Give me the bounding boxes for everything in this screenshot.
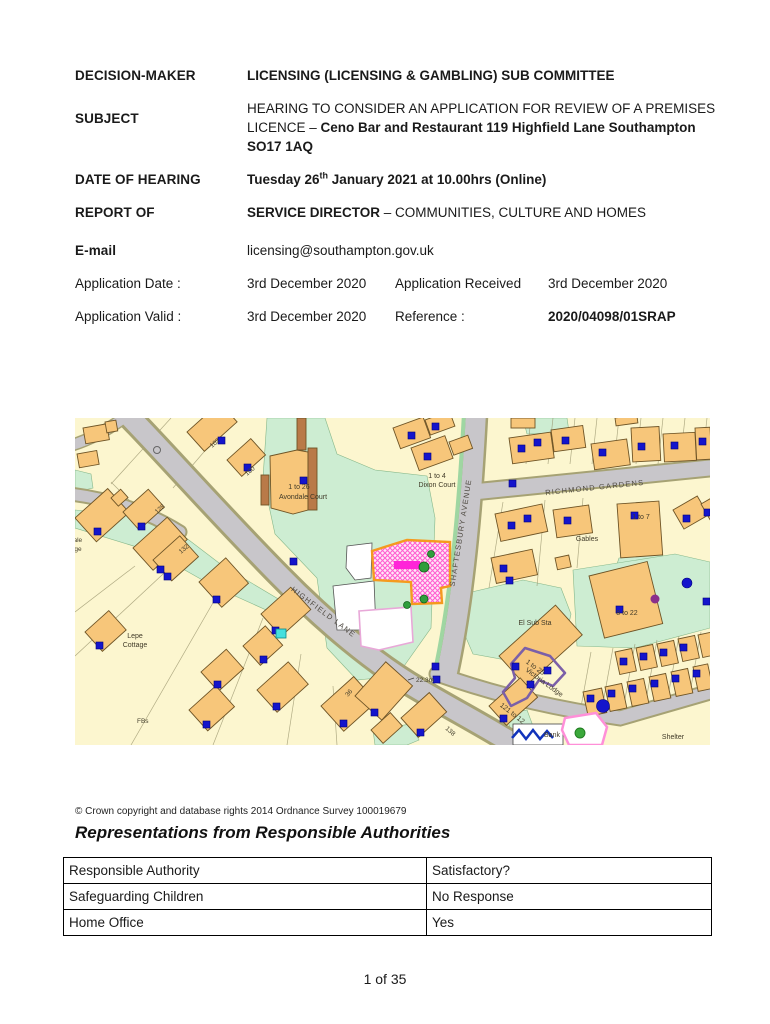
application-received-label: Application Received (395, 276, 521, 291)
application-valid-value: 3rd December 2020 (247, 309, 366, 324)
report-of-bold: SERVICE DIRECTOR (247, 205, 380, 220)
date-of-hearing-value: Tuesday 26th January 2021 at 10.00hrs (O… (247, 172, 546, 187)
map-copyright: © Crown copyright and database rights 20… (75, 806, 406, 817)
application-received-value: 3rd December 2020 (548, 276, 667, 291)
label-edge-cut-1: kvale (75, 537, 83, 544)
table-row: Home Office Yes (64, 910, 712, 936)
premises-magenta-bar (394, 561, 420, 569)
pink-outlined-plot (562, 713, 607, 745)
location-map: RICHMOND GARDENS SHAFTESBURY AVENUE HIGH… (75, 418, 710, 745)
label-dixon-court: Dixon Court (419, 482, 456, 489)
label-bank: Bank (544, 732, 560, 739)
table-row: Safeguarding Children No Response (64, 884, 712, 910)
decision-maker-value: LICENSING (LICENSING & GAMBLING) SUB COM… (247, 68, 717, 83)
purple-dot-marker (651, 595, 660, 604)
label-shelter: Shelter (662, 734, 685, 741)
subject-label: SUBJECT (75, 111, 139, 126)
representations-table: Responsible Authority Satisfactory? Safe… (63, 857, 712, 936)
application-valid-label: Application Valid : (75, 309, 181, 324)
table-cell-authority: Safeguarding Children (64, 884, 427, 910)
map-svg: RICHMOND GARDENS SHAFTESBURY AVENUE HIGH… (75, 418, 710, 745)
table-header-satisfactory: Satisfactory? (427, 858, 712, 884)
label-edge-cut-2: tage (75, 546, 82, 553)
page-number: 1 of 35 (0, 971, 770, 987)
label-avondale-range: 1 to 26 (288, 484, 310, 491)
label-spot-height: 22.3m (416, 677, 434, 684)
report-of-value: SERVICE DIRECTOR – COMMUNITIES, CULTURE … (247, 205, 717, 220)
table-cell-satisfactory: No Response (427, 884, 712, 910)
table-header-authority: Responsible Authority (64, 858, 427, 884)
section-heading: Representations from Responsible Authori… (75, 823, 450, 843)
date-superscript: th (320, 171, 329, 181)
date-main: Tuesday 26 (247, 172, 320, 187)
label-el-sub-sta: El Sub Sta (518, 620, 551, 627)
table-header-row: Responsible Authority Satisfactory? (64, 858, 712, 884)
application-date-value: 3rd December 2020 (247, 276, 366, 291)
label-avondale-court: Avondale Court (279, 494, 327, 501)
application-date-label: Application Date : (75, 276, 181, 291)
report-page: DECISION-MAKER LICENSING (LICENSING & GA… (0, 0, 770, 1024)
label-lepe: Lepe (127, 633, 143, 640)
decision-maker-label: DECISION-MAKER (75, 68, 196, 83)
label-1-to-7: 1 to 7 (632, 514, 650, 521)
label-8-to-22: 8 to 22 (616, 610, 638, 617)
reference-label: Reference : (395, 309, 465, 324)
table-cell-authority: Home Office (64, 910, 427, 936)
subject-value: HEARING TO CONSIDER AN APPLICATION FOR R… (247, 99, 717, 156)
label-fbs: FBs (137, 718, 149, 725)
email-value: licensing@southampton.gov.uk (247, 243, 434, 258)
label-gables: Gables (576, 536, 599, 543)
cyan-marker (276, 629, 286, 638)
date-rest: January 2021 at 10.00hrs (Online) (328, 172, 546, 187)
email-label: E-mail (75, 243, 116, 258)
reference-value: 2020/04098/01SRAP (548, 309, 676, 324)
date-of-hearing-label: DATE OF HEARING (75, 172, 201, 187)
label-cottage: Cottage (123, 642, 148, 649)
report-of-label: REPORT OF (75, 205, 155, 220)
label-dixon-range: 1 to 4 (428, 473, 446, 480)
report-of-regular: – COMMUNITIES, CULTURE AND HOMES (380, 205, 646, 220)
table-cell-satisfactory: Yes (427, 910, 712, 936)
tree-icon (575, 728, 585, 738)
